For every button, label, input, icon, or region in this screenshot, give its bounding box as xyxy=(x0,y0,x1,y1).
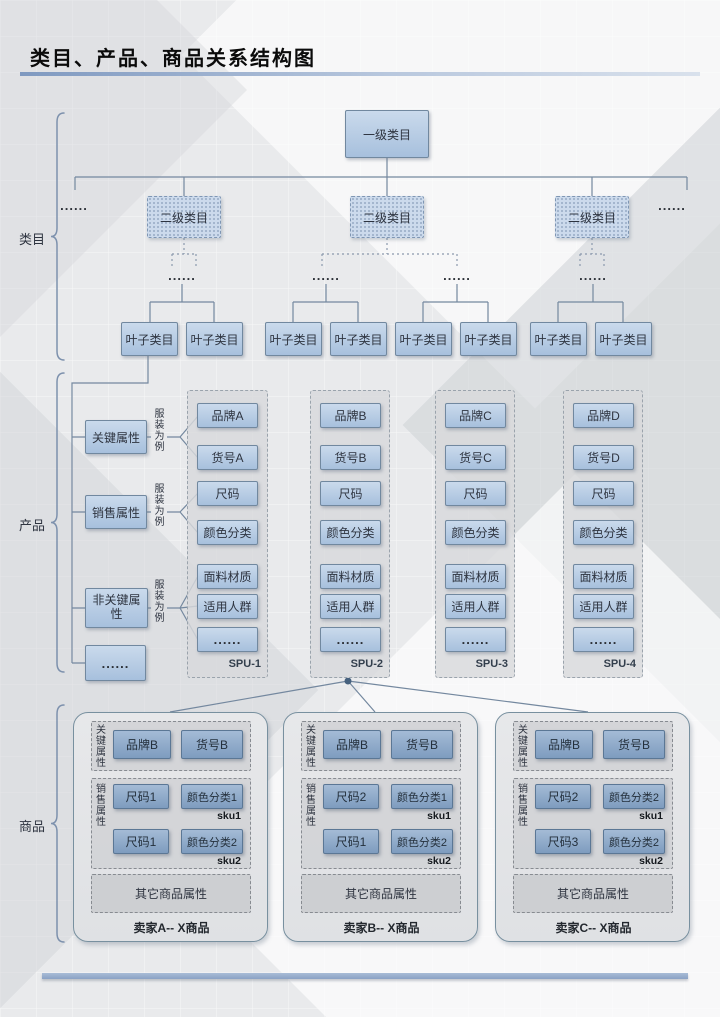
spu-attr-box: 颜色分类 xyxy=(573,520,634,545)
spu-attr-box: ...... xyxy=(320,627,381,652)
spu-attr-box: 颜色分类 xyxy=(320,520,381,545)
seller-name: 卖家B-- X商品 xyxy=(284,919,479,936)
page-title: 类目、产品、商品关系结构图 xyxy=(30,42,316,71)
seller-card-a: 关键属性 品牌B 货号B 销售属性 尺码1 颜色分类1 sku1 尺码1 颜色分… xyxy=(73,712,268,942)
key-attrs-label: 关键属性 xyxy=(515,724,527,768)
item-no-box: 货号B xyxy=(391,730,453,759)
section-label-commodity: 商品 xyxy=(14,816,50,835)
spu-attr-box: 适用人群 xyxy=(197,594,258,619)
spu-attr-box: 面料材质 xyxy=(445,564,506,589)
root-category-box: 一级类目 xyxy=(345,110,429,158)
sales-attrs-label: 销售属性 xyxy=(303,783,315,827)
ellipsis-group: ...... xyxy=(431,268,483,283)
spu-attr-box: 品牌D xyxy=(573,403,634,428)
attr-note: 服装为例 xyxy=(152,483,163,543)
ellipsis-left: ...... xyxy=(48,198,100,213)
ellipsis-group: ...... xyxy=(156,268,208,283)
other-attrs-box: 其它商品属性 xyxy=(91,874,251,913)
leaf-category-box: 叶子类目 xyxy=(460,322,517,356)
leaf-category-box: 叶子类目 xyxy=(595,322,652,356)
spu-attr-box: 颜色分类 xyxy=(197,520,258,545)
leaf-category-box: 叶子类目 xyxy=(395,322,452,356)
spu-attr-box: 尺码 xyxy=(573,481,634,506)
spu-attr-box: 品牌C xyxy=(445,403,506,428)
sku-id: sku2 xyxy=(379,855,451,867)
spu-attr-box: 适用人群 xyxy=(320,594,381,619)
spu-attr-box: 尺码 xyxy=(445,481,506,506)
spu-attr-box: ...... xyxy=(197,627,258,652)
spu-attr-box: ...... xyxy=(573,627,634,652)
item-no-box: 货号B xyxy=(603,730,665,759)
item-no-box: 货号B xyxy=(181,730,243,759)
sku-size-box: 尺码2 xyxy=(535,784,591,809)
spu-attr-box: 品牌A xyxy=(197,403,258,428)
leaf-category-box: 叶子类目 xyxy=(121,322,178,356)
sku-id: sku2 xyxy=(169,855,241,867)
seller-name: 卖家A-- X商品 xyxy=(74,919,269,936)
sku-color-box: 颜色分类2 xyxy=(603,784,665,809)
brand-box: 品牌B xyxy=(113,730,171,759)
sku-id: sku1 xyxy=(169,810,241,822)
spu-attr-box: 面料材质 xyxy=(197,564,258,589)
seller-name: 卖家C-- X商品 xyxy=(496,919,691,936)
leaf-category-box: 叶子类目 xyxy=(530,322,587,356)
attr-note: 服装为例 xyxy=(152,408,163,468)
section-label-category: 类目 xyxy=(14,229,50,248)
spu-attr-box: 颜色分类 xyxy=(445,520,506,545)
spu-attr-box: 面料材质 xyxy=(320,564,381,589)
sku-size-box: 尺码1 xyxy=(323,829,379,854)
spu-attr-box: 货号B xyxy=(320,445,381,470)
commodity-brace xyxy=(51,705,64,942)
section-label-product: 产品 xyxy=(14,515,50,534)
sku-id: sku1 xyxy=(591,810,663,822)
spu-attr-box: 适用人群 xyxy=(573,594,634,619)
key-attrs-label: 关键属性 xyxy=(93,724,105,768)
product-brace xyxy=(51,373,64,672)
spu-attr-box: 适用人群 xyxy=(445,594,506,619)
spu-attr-box: ...... xyxy=(445,627,506,652)
sku-id: sku2 xyxy=(591,855,663,867)
sales-attrs-label: 销售属性 xyxy=(515,783,527,827)
seller-card-b: 关键属性 品牌B 货号B 销售属性 尺码2 颜色分类1 sku1 尺码1 颜色分… xyxy=(283,712,478,942)
brand-box: 品牌B xyxy=(323,730,381,759)
category-brace xyxy=(51,113,64,360)
other-attrs-box: 其它商品属性 xyxy=(301,874,461,913)
diagram-page: 类目、产品、商品关系结构图 xyxy=(0,0,720,1017)
sku-id: sku1 xyxy=(379,810,451,822)
sku-color-box: 颜色分类2 xyxy=(181,829,243,854)
leaf-category-box: 叶子类目 xyxy=(186,322,243,356)
attr-group-key: 关键属性 xyxy=(85,420,147,454)
leaf-category-box: 叶子类目 xyxy=(265,322,322,356)
level2-category-box: 二级类目 xyxy=(147,196,221,238)
sku-color-box: 颜色分类2 xyxy=(603,829,665,854)
title-underline xyxy=(20,72,700,76)
attr-group-ellipsis: ...... xyxy=(85,645,146,681)
ellipsis-group: ...... xyxy=(567,268,619,283)
spu-attr-box: 货号D xyxy=(573,445,634,470)
attr-group-nonkey: 非关键属性 xyxy=(85,588,148,628)
attr-group-sales: 销售属性 xyxy=(85,495,147,529)
spu-attr-box: 面料材质 xyxy=(573,564,634,589)
key-attrs-label: 关键属性 xyxy=(303,724,315,768)
attr-note: 服装为例 xyxy=(152,579,163,639)
leaf-category-box: 叶子类目 xyxy=(330,322,387,356)
sku-color-box: 颜色分类2 xyxy=(391,829,453,854)
spu-attr-box: 货号C xyxy=(445,445,506,470)
other-attrs-box: 其它商品属性 xyxy=(513,874,673,913)
ellipsis-group: ...... xyxy=(300,268,352,283)
ellipsis-right: ...... xyxy=(646,198,698,213)
level2-category-box: 二级类目 xyxy=(555,196,629,238)
sku-size-box: 尺码1 xyxy=(113,784,169,809)
spu-attr-box: 品牌B xyxy=(320,403,381,428)
sales-attrs-label: 销售属性 xyxy=(93,783,105,827)
sku-color-box: 颜色分类1 xyxy=(181,784,243,809)
seller-card-c: 关键属性 品牌B 货号B 销售属性 尺码2 颜色分类2 sku1 尺码3 颜色分… xyxy=(495,712,690,942)
spu-attr-box: 尺码 xyxy=(320,481,381,506)
spu-attr-box: 尺码 xyxy=(197,481,258,506)
sku-size-box: 尺码2 xyxy=(323,784,379,809)
level2-category-box: 二级类目 xyxy=(350,196,424,238)
sku-size-box: 尺码3 xyxy=(535,829,591,854)
brand-box: 品牌B xyxy=(535,730,593,759)
spu-attr-box: 货号A xyxy=(197,445,258,470)
sku-size-box: 尺码1 xyxy=(113,829,169,854)
sku-color-box: 颜色分类1 xyxy=(391,784,453,809)
